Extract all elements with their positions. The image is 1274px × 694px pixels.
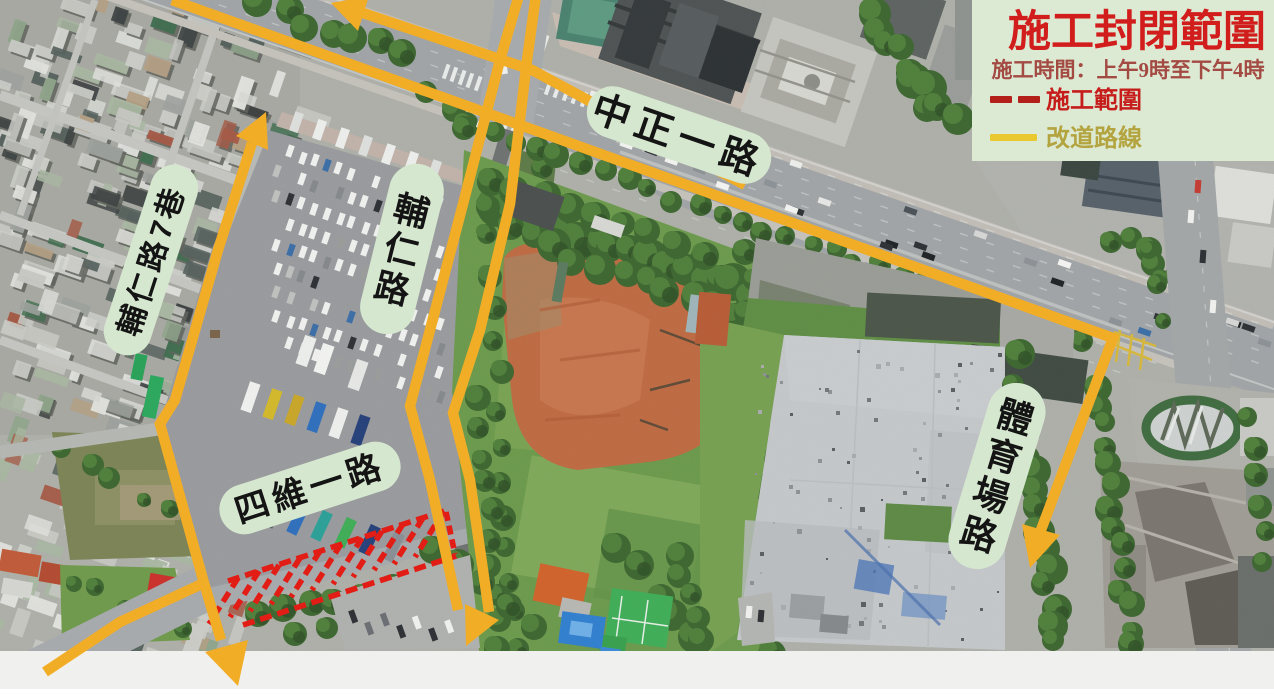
svg-text:施工範圍: 施工範圍 [1046,86,1142,114]
svg-text:施工封閉範圍: 施工封閉範圍 [1008,8,1266,56]
svg-text:施工時間：上午9時至下午4時: 施工時間：上午9時至下午4時 [992,58,1265,82]
svg-text:改道路線: 改道路線 [1046,124,1142,152]
